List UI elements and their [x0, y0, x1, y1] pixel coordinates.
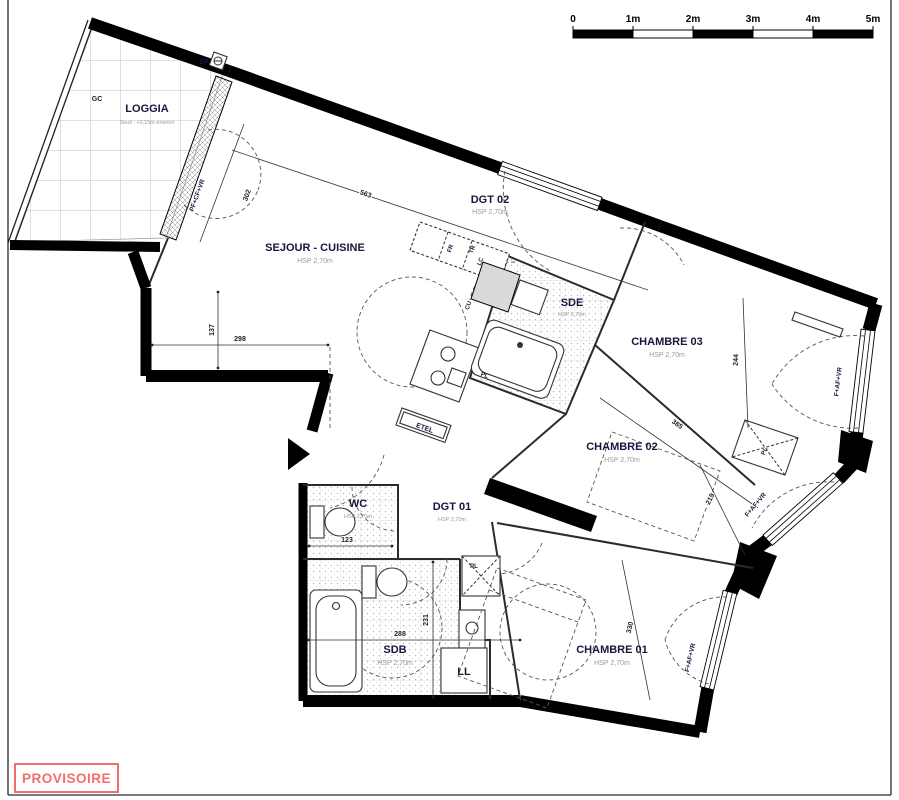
door-swings	[184, 129, 864, 684]
entry-arrow-icon	[288, 438, 310, 470]
dim-sejour-left-w: 298	[234, 336, 246, 343]
ep-label: EP	[199, 59, 209, 66]
dgt01-placard	[462, 556, 500, 596]
room-sub-sejour: HSP 2,70m	[297, 258, 333, 265]
dgt02-ch03-wall	[614, 222, 645, 300]
ch03-ch02-wall	[595, 345, 755, 485]
room-sub-chambre02: HSP 2,70m	[604, 457, 640, 464]
room-label-dgt01: DGT 01	[433, 501, 472, 513]
dim-wc-width: 123	[341, 537, 353, 544]
ch01-door-arc	[498, 543, 542, 574]
scale-label-2m: 2m	[686, 14, 701, 25]
loggia-door-arc	[208, 129, 261, 190]
room-sub-loggia: Seuil : +0,15m environ	[120, 120, 175, 126]
room-label-loggia: LOGGIA	[125, 103, 168, 115]
scale-label-3m: 3m	[746, 14, 761, 25]
dim-ch03-depth: 244	[733, 354, 740, 366]
wc-toilet	[310, 506, 355, 538]
room-label-sejour: SEJOUR - CUISINE	[265, 242, 365, 254]
room-label-chambre02: CHAMBRE 02	[586, 441, 658, 453]
dim-loggia-door: 302	[242, 189, 253, 202]
room-sub-chambre01: HSP 2,70m	[594, 660, 630, 667]
gc-label: GC	[92, 96, 103, 103]
room-label-chambre01: CHAMBRE 01	[576, 644, 648, 656]
dim-sdb-height: 231	[423, 614, 430, 626]
dim-sejour-top: 563	[359, 189, 372, 199]
room-label-chambre03: CHAMBRE 03	[631, 336, 703, 348]
room-sub-dgt01: HSP 2,70m	[438, 517, 466, 523]
dim-sdb-width: 288	[394, 631, 406, 638]
floor-plan-page: 0 1m 2m 3m 4m 5m	[0, 0, 899, 800]
room-label-dgt02: DGT 02	[471, 194, 510, 206]
ch03-radiator	[792, 312, 843, 337]
scale-label-5m: 5m	[866, 14, 881, 25]
room-sub-wc: HSP 2,70m	[344, 514, 372, 520]
dim-sejour-left-h: 137	[209, 324, 216, 336]
room-sub-sde: HSP 2,70m	[558, 312, 586, 318]
pl-label-dgt01: PL	[470, 564, 478, 570]
kitchen-sink-unit	[410, 330, 479, 402]
window-sejour	[498, 161, 602, 210]
window-ch03	[849, 329, 875, 433]
room-sub-dgt02: HSP 2,70m	[472, 209, 508, 216]
wall-corner-blocks	[484, 430, 873, 599]
stamp-label: PROVISOIRE	[22, 771, 111, 786]
room-sub-sdb: HSP 2,70m	[377, 660, 413, 667]
scale-label-4m: 4m	[806, 14, 821, 25]
room-label-sdb: SDB	[383, 644, 406, 656]
washing-machine-label: LL	[457, 666, 471, 678]
window-ch01	[700, 590, 737, 690]
floor-plan-drawing: 0 1m 2m 3m 4m 5m	[0, 0, 899, 800]
sdb-bathtub	[310, 590, 362, 692]
room-label-wc: WC	[349, 498, 367, 510]
window-ch02	[763, 473, 843, 546]
ch02-ch01-wall	[497, 523, 753, 568]
ch01-west-wall	[492, 522, 520, 699]
scale-label-1m: 1m	[626, 14, 641, 25]
sdb-basin	[459, 610, 485, 648]
scale-bar: 0 1m 2m 3m 4m 5m	[570, 14, 880, 38]
window-label-ch01: F+AF+VR	[684, 642, 697, 672]
cu-label: CU	[465, 301, 474, 311]
window-label-ch02: F+AF+VR	[744, 491, 768, 518]
ch03-window-arc	[772, 336, 864, 384]
scale-label-0: 0	[570, 14, 576, 25]
provisional-stamp: PROVISOIRE	[15, 764, 118, 792]
window-label-ch03: F+AF+VR	[833, 367, 844, 397]
dim-ch01-depth: 330	[626, 621, 635, 634]
room-sub-chambre03: HSP 2,70m	[649, 352, 685, 359]
sdb-toilet	[362, 566, 407, 598]
room-label-sde: SDE	[561, 297, 584, 309]
